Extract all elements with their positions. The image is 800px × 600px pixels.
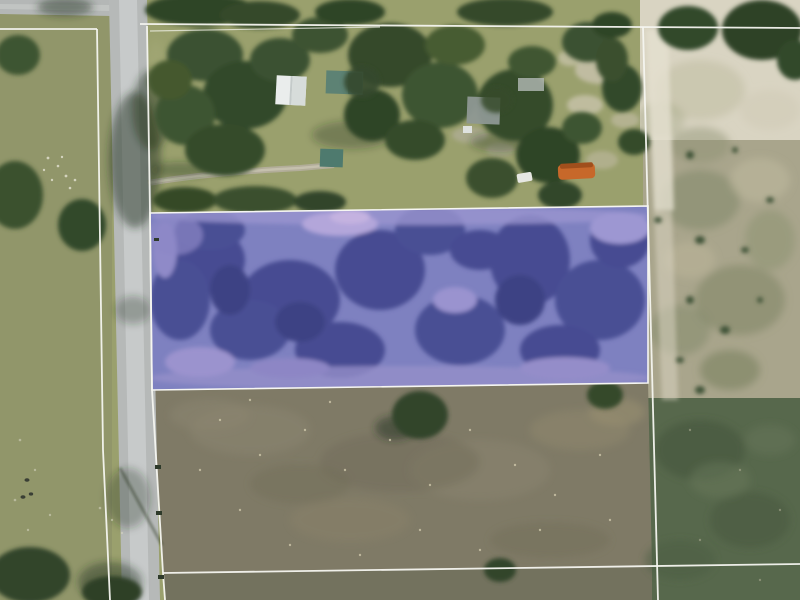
aerial-map-view[interactable] <box>0 0 800 600</box>
roof-shaded-half <box>291 76 306 106</box>
gray-roof-small <box>518 78 544 91</box>
highlighted-parcel[interactable] <box>147 205 650 390</box>
tree-over-house <box>481 87 513 113</box>
left-pasture <box>0 0 112 600</box>
small-white-structure <box>463 126 472 133</box>
tree-over-house <box>344 66 380 98</box>
map-canvas <box>0 0 800 600</box>
teal-roof-shed <box>320 149 344 168</box>
